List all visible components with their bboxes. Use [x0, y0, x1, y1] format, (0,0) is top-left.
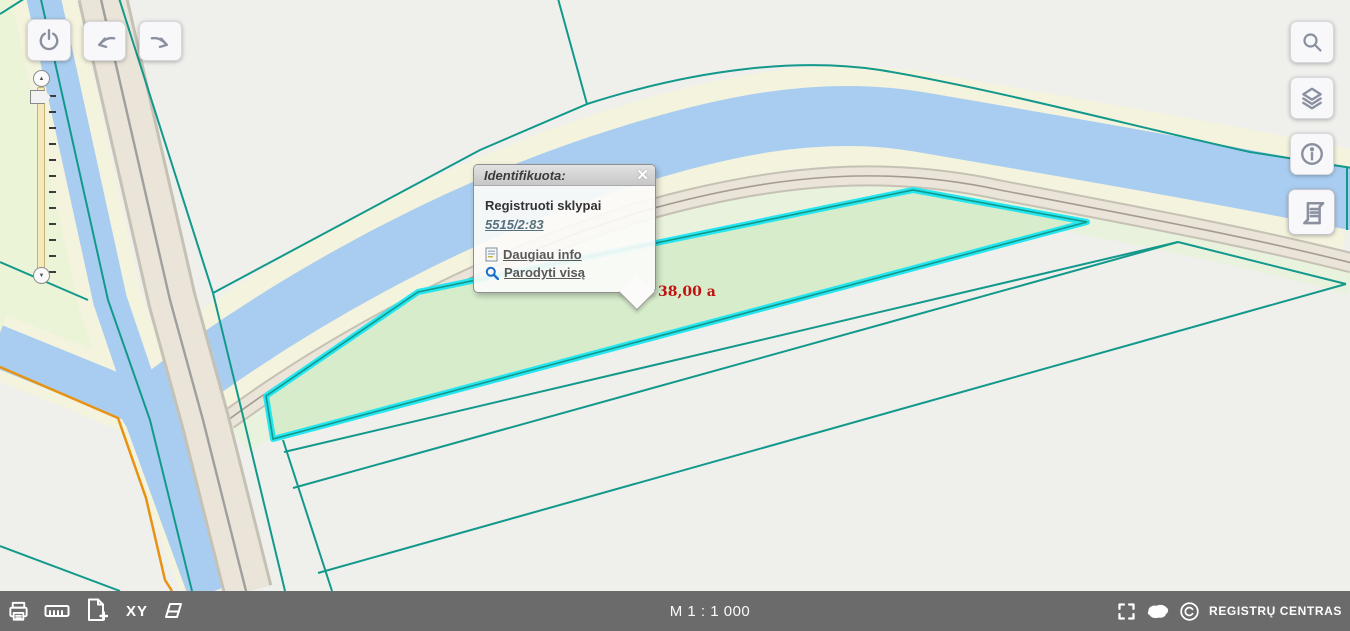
layers-icon	[1299, 85, 1325, 111]
document-info-icon	[485, 247, 498, 262]
zoom-in-button[interactable]: ▲	[33, 70, 50, 87]
fullscreen-icon[interactable]	[1116, 601, 1137, 622]
result-layer-name: Registruoti sklypai	[485, 198, 645, 213]
more-info-link[interactable]: Daugiau info	[503, 247, 582, 262]
footer-brand: REGISTRŲ CENTRAS	[1116, 591, 1342, 631]
search-button[interactable]	[1290, 21, 1334, 63]
show-all-link[interactable]: Parodyti visą	[504, 265, 585, 280]
arrow-right-icon	[148, 28, 174, 54]
copyright-icon	[1179, 601, 1200, 622]
parcel-code-link[interactable]: 5515/2:83	[485, 217, 544, 232]
map-application: 38,00 a ▲ ▼	[0, 0, 1350, 631]
search-icon	[1300, 30, 1324, 54]
brand-name: REGISTRŲ CENTRAS	[1209, 604, 1342, 618]
lithuania-map-icon	[1146, 603, 1170, 620]
zoom-ticks	[49, 95, 56, 273]
info-button[interactable]	[1290, 133, 1334, 175]
legend-button[interactable]	[1288, 189, 1335, 235]
back-button[interactable]	[83, 21, 126, 61]
forward-button[interactable]	[139, 21, 182, 61]
show-all-row: Parodyti visą	[485, 265, 645, 280]
identify-popup-body: Registruoti sklypai 5515/2:83 Daugiau in…	[474, 186, 655, 292]
identify-popup: Identifikuota: ✕ Registruoti sklypai 551…	[473, 164, 656, 293]
zoom-track[interactable]	[37, 87, 45, 271]
legend-icon	[1298, 198, 1326, 226]
power-icon	[36, 27, 62, 53]
layers-button[interactable]	[1290, 77, 1334, 119]
bottom-toolbar: XY M 1 : 1 000 REGISTRŲ CENTRAS	[0, 591, 1350, 631]
identify-popup-header: Identifikuota: ✕	[474, 165, 655, 186]
arrow-left-icon	[92, 28, 118, 54]
zoom-out-button[interactable]: ▼	[33, 267, 50, 284]
parcel-area-label: 38,00 a	[658, 284, 716, 300]
close-icon[interactable]: ✕	[636, 168, 649, 183]
power-button[interactable]	[27, 19, 71, 61]
more-info-row: Daugiau info	[485, 247, 645, 262]
info-icon	[1299, 141, 1325, 167]
magnifier-icon	[485, 266, 499, 280]
identify-popup-title: Identifikuota:	[484, 168, 636, 183]
